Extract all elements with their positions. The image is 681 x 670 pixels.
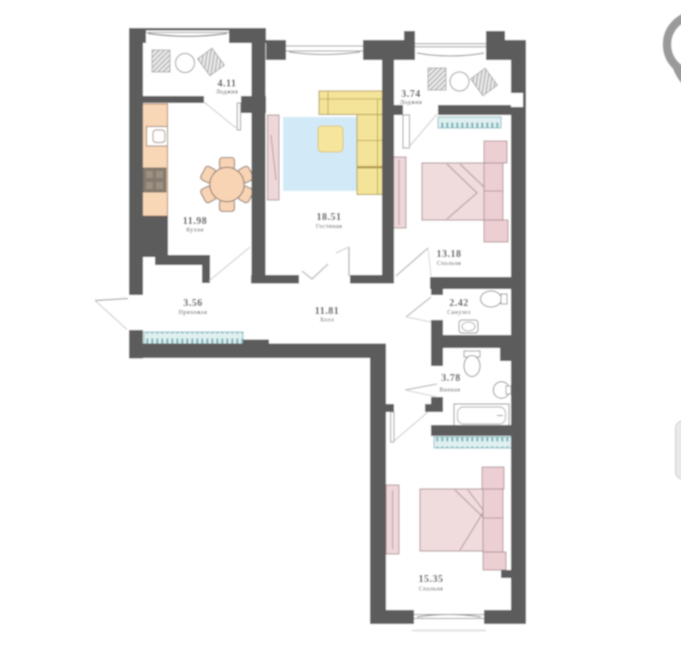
svg-text:Лоджия: Лоджия <box>216 90 238 96</box>
svg-text:2.42: 2.42 <box>449 298 469 309</box>
svg-text:Спальня: Спальня <box>419 587 443 593</box>
svg-text:Кухня: Кухня <box>186 228 204 234</box>
svg-text:3.78: 3.78 <box>441 373 461 384</box>
svg-text:3.74: 3.74 <box>401 89 421 100</box>
svg-text:4.11: 4.11 <box>218 79 237 90</box>
svg-text:11.81: 11.81 <box>315 306 339 317</box>
svg-text:11.98: 11.98 <box>183 216 207 227</box>
svg-text:Санузел: Санузел <box>447 310 471 316</box>
svg-text:15.35: 15.35 <box>419 574 444 585</box>
svg-text:13.18: 13.18 <box>437 249 462 260</box>
svg-text:Гостиная: Гостиная <box>316 224 342 230</box>
svg-text:3.56: 3.56 <box>183 298 203 309</box>
svg-text:Ванная: Ванная <box>440 388 461 394</box>
svg-text:Холл: Холл <box>320 318 334 324</box>
svg-text:Спальня: Спальня <box>437 261 461 267</box>
svg-text:Лоджия: Лоджия <box>400 100 422 106</box>
svg-text:18.51: 18.51 <box>317 212 342 223</box>
svg-text:Прихожая: Прихожая <box>179 310 208 316</box>
